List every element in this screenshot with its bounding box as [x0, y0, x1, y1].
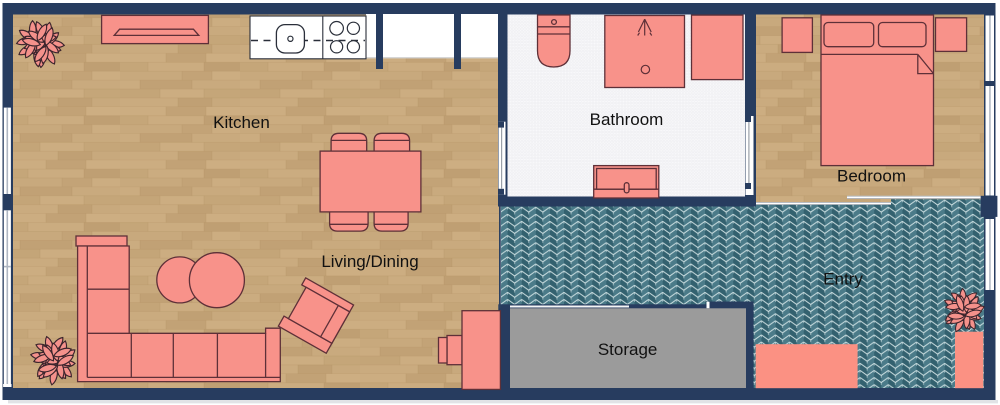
svg-text:Kitchen: Kitchen: [213, 113, 270, 132]
svg-text:Bedroom: Bedroom: [837, 166, 906, 185]
svg-text:Entry: Entry: [823, 269, 863, 288]
svg-text:Living/Dining: Living/Dining: [321, 252, 418, 271]
svg-text:Bathroom: Bathroom: [590, 110, 664, 129]
svg-text:Storage: Storage: [598, 340, 658, 359]
